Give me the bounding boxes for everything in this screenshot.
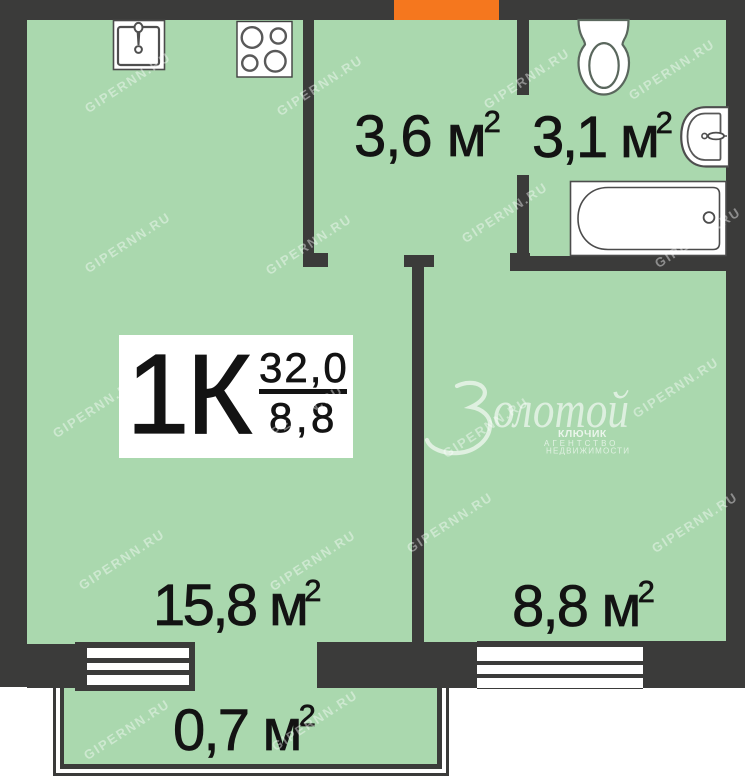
svg-text:НЕДВИЖИМОСТИ: НЕДВИЖИМОСТИ	[546, 447, 630, 456]
